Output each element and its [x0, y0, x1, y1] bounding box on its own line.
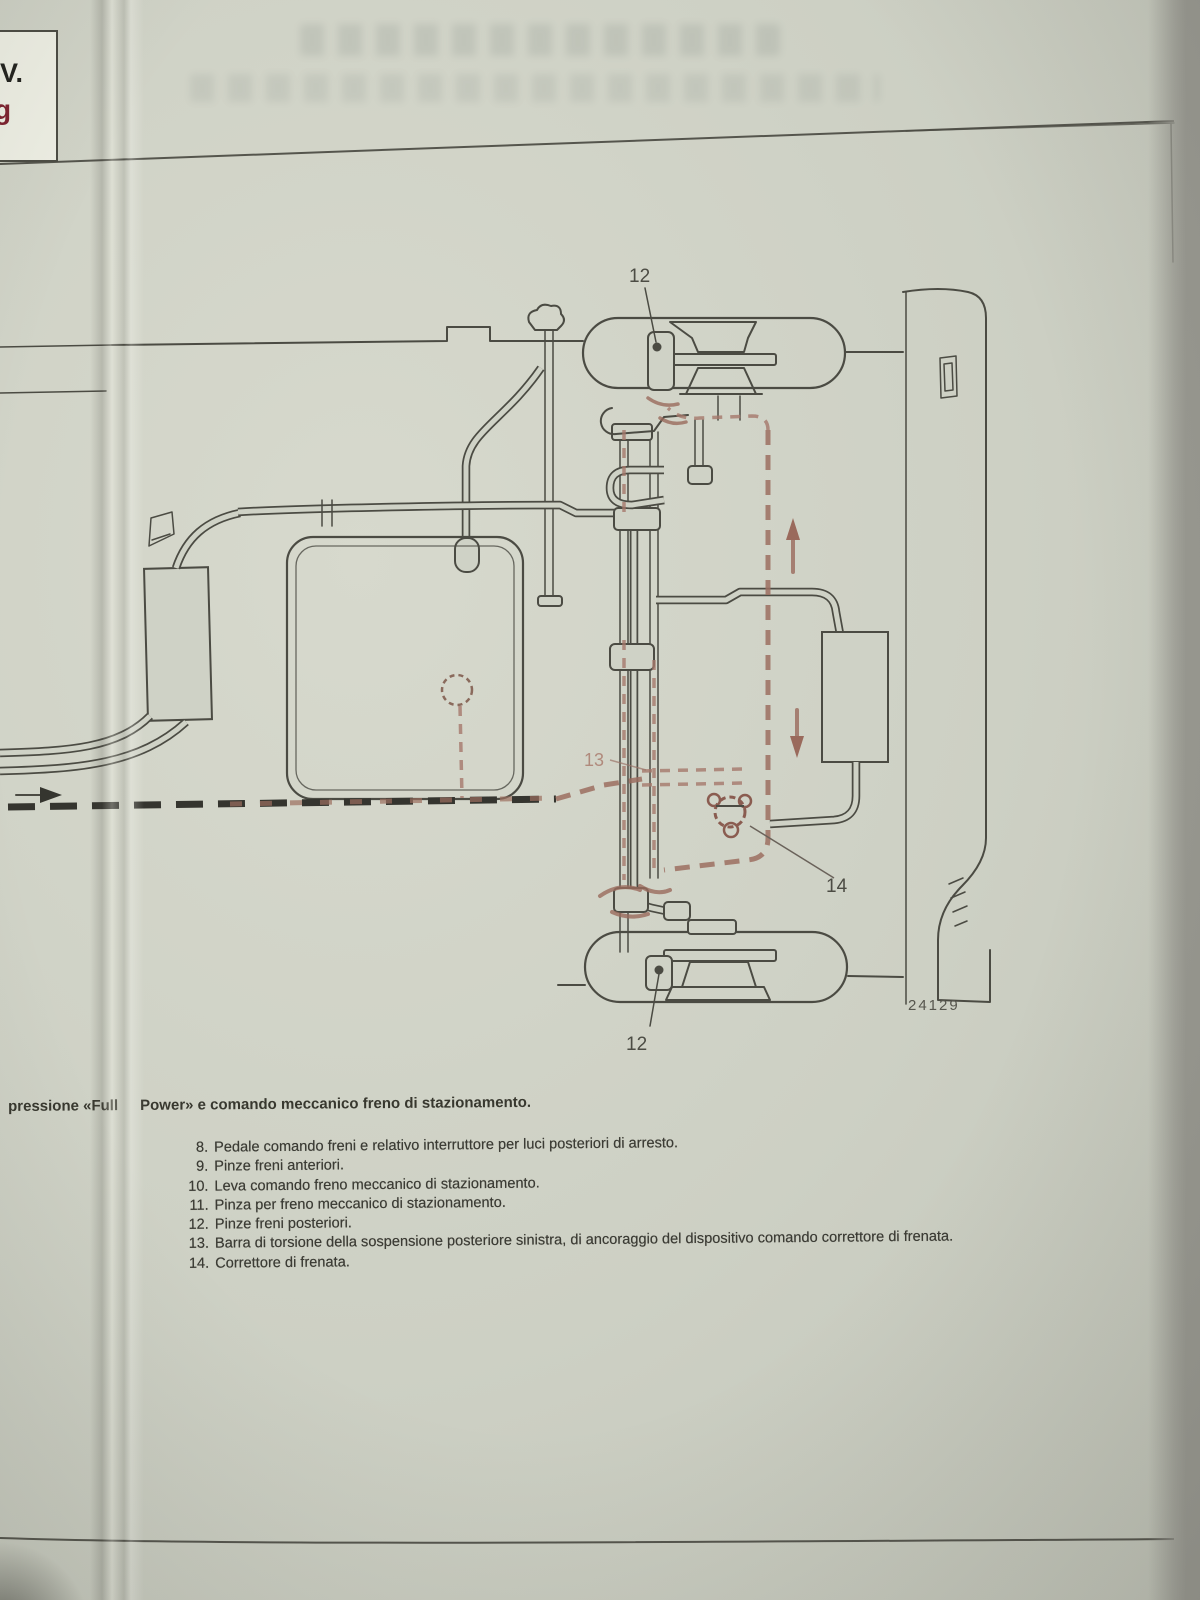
left-bracket: [149, 512, 174, 546]
handbrake-lever: [528, 305, 564, 606]
handbrake-cable: [8, 408, 768, 880]
cable-over-tank: [460, 706, 462, 798]
leader-14: [750, 826, 834, 878]
brake-corrector: [708, 794, 751, 837]
brake-caliper-top: [648, 332, 674, 390]
floor-sill-line: [112, 327, 583, 345]
figure-legend: 8.Pedale comando freni e relativo interr…: [176, 1131, 1037, 1274]
corner-box-line1: V.: [0, 58, 23, 89]
rear-wheel-top: [583, 318, 845, 484]
callout-dot-bottom: [655, 966, 664, 975]
top-rule: [0, 121, 1174, 164]
caption-rest: Power» e comando meccanico freno di staz…: [140, 1094, 531, 1114]
corner-callout-box: V. g: [0, 30, 58, 162]
bottom-rule: [0, 1538, 1174, 1543]
figure-number: 24129: [908, 997, 960, 1014]
left-edge-lines: [0, 345, 112, 393]
brake-system-diagram: 12 12: [0, 0, 1200, 1600]
right-box: [822, 632, 888, 762]
label-12-top: 12: [629, 266, 650, 287]
cable-end-bulb: [455, 538, 479, 572]
corner-box-line2: g: [0, 94, 11, 126]
label-12-bottom: 12: [626, 1034, 647, 1055]
label-14: 14: [826, 876, 848, 897]
callout-dot-top: [653, 343, 662, 352]
rear-body-outline: [903, 289, 990, 1004]
left-box: [144, 567, 212, 721]
cable-grommet: [442, 675, 472, 705]
pipe-clips: [322, 500, 332, 526]
floor-line-bottom-right: [848, 976, 903, 977]
direction-arrow: [40, 787, 62, 803]
rear-wheel-bottom: [585, 888, 847, 1002]
fuel-tank: [287, 537, 523, 799]
label-13: 13: [584, 750, 604, 770]
caption-lead: pressione «Full: [8, 1097, 118, 1115]
top-right-frame: [906, 123, 1174, 262]
scanned-manual-page: 12 12: [0, 0, 1200, 1600]
flow-arrows: [786, 518, 804, 758]
